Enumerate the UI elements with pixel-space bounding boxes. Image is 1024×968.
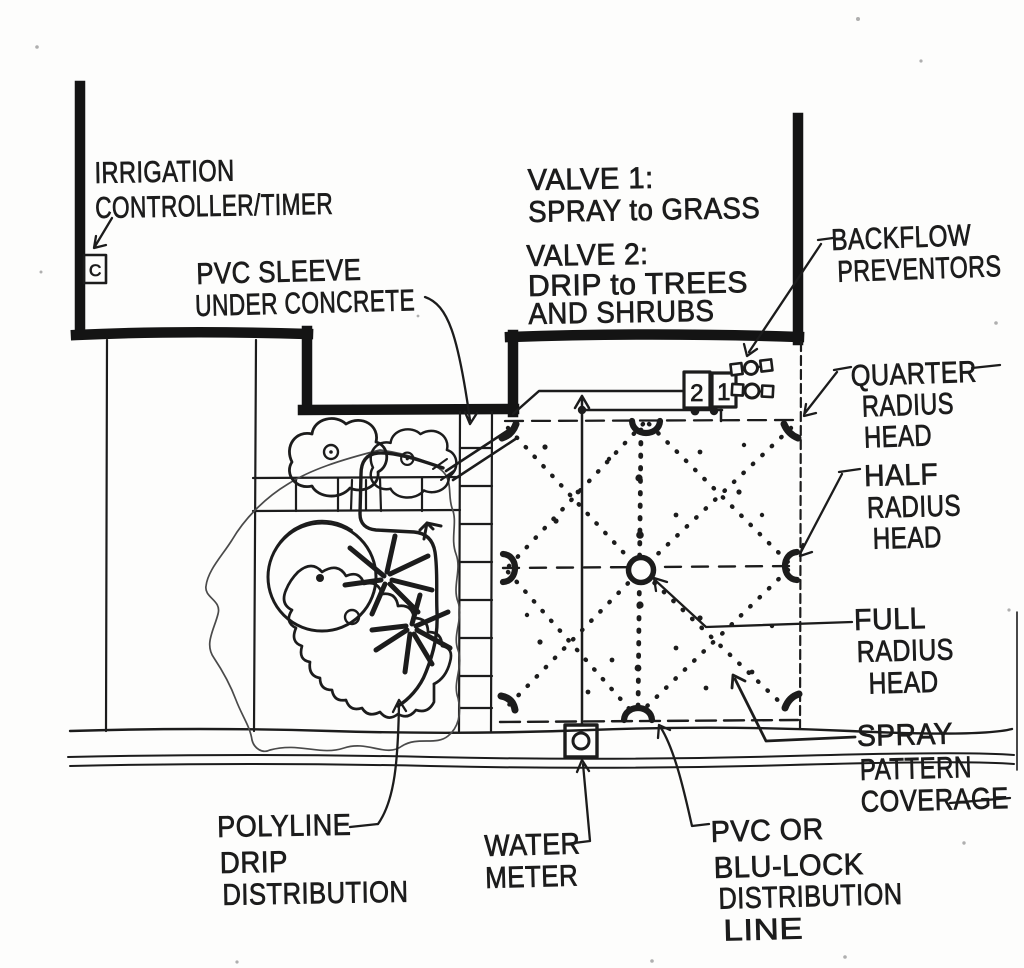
label-half-radius: HALF RADIUS HEAD xyxy=(864,458,962,556)
quarter-radius-head-bottom-right xyxy=(785,694,799,708)
sketch-canvas: 2 1 C xyxy=(0,0,1024,968)
backflow-preventer-1 xyxy=(730,359,772,377)
controller-symbol: C xyxy=(84,255,106,283)
house-outline xyxy=(76,86,799,412)
lawn-left-edge xyxy=(491,412,492,731)
label-irrigation-controller: IRRIGATION CONTROLLER/TIMER xyxy=(94,153,333,225)
drip-planting-zone xyxy=(206,419,460,752)
label-pvc-sleeve: PVC SLEEVE UNDER CONCRETE xyxy=(194,252,416,323)
cloud-shrub-2 xyxy=(371,429,457,497)
label-full-radius: FULL RADIUS HEAD xyxy=(854,601,956,701)
label-valve1: VALVE 1: SPRAY to GRASS xyxy=(527,160,760,229)
svg-text:SPRAY to GRASS: SPRAY to GRASS xyxy=(528,192,761,229)
backflow-preventer-2 xyxy=(732,383,774,399)
half-radius-head-top xyxy=(632,421,660,433)
svg-text:HEAD: HEAD xyxy=(863,419,932,454)
svg-text:CONTROLLER/TIMER: CONTROLLER/TIMER xyxy=(95,188,334,225)
half-radius-head-bottom xyxy=(624,708,652,720)
half-leader-arrow xyxy=(800,469,860,556)
controller-letter: C xyxy=(89,261,102,280)
svg-text:QUARTER: QUARTER xyxy=(850,356,977,393)
svg-text:VALVE 1:: VALVE 1: xyxy=(527,162,654,197)
svg-text:AND SHRUBS: AND SHRUBS xyxy=(528,295,715,331)
svg-text:COVERAGE: COVERAGE xyxy=(860,782,1009,819)
valve-1-number: 1 xyxy=(717,379,731,406)
half-radius-head-right xyxy=(785,552,797,580)
svg-text:DISTRIBUTION: DISTRIBUTION xyxy=(718,878,903,916)
svg-text:WATER: WATER xyxy=(484,828,581,864)
lawn-spray-zone xyxy=(500,420,799,722)
label-polyline-drip: POLYLINE DRIP DISTRIBUTION xyxy=(217,808,409,912)
pvc-leader-arrow xyxy=(658,725,709,826)
walkway-left-edge xyxy=(459,412,460,731)
svg-text:PREVENTORS: PREVENTORS xyxy=(837,250,1002,289)
svg-text:FULL: FULL xyxy=(854,602,927,637)
label-backflow: BACKFLOW PREVENTORS xyxy=(831,218,1002,289)
label-pvc-distribution: PVC OR BLU-LOCK DISTRIBUTION LINE xyxy=(710,811,903,948)
right-property-line xyxy=(800,342,801,731)
drip-flow-arrow xyxy=(420,523,441,539)
svg-text:LINE: LINE xyxy=(723,913,804,948)
svg-text:POLYLINE: POLYLINE xyxy=(217,809,352,844)
label-valve2: VALVE 2: DRIP to TREES AND SHRUBS xyxy=(526,236,749,331)
svg-text:RADIUS: RADIUS xyxy=(867,489,962,524)
svg-text:HEAD: HEAD xyxy=(872,521,942,556)
svg-text:HEAD: HEAD xyxy=(868,666,939,701)
full-radius-head-center xyxy=(629,558,654,583)
annotations: IRRIGATION CONTROLLER/TIMER PVC SLEEVE U… xyxy=(94,153,1009,948)
supply-pipes xyxy=(513,391,722,725)
svg-text:SPRAY: SPRAY xyxy=(857,718,954,754)
svg-text:DISTRIBUTION: DISTRIBUTION xyxy=(222,876,409,912)
svg-text:PATTERN: PATTERN xyxy=(859,751,972,787)
full-leader-arrow xyxy=(654,578,852,627)
left-property-line xyxy=(106,340,107,731)
svg-text:UNDER CONCRETE: UNDER CONCRETE xyxy=(195,284,416,323)
svg-text:IRRIGATION: IRRIGATION xyxy=(94,155,235,190)
label-quarter-radius: QUARTER RADIUS HEAD xyxy=(850,356,979,455)
quarter-leader-arrow xyxy=(804,367,851,416)
svg-text:RADIUS: RADIUS xyxy=(856,633,954,669)
label-water-meter: WATER METER xyxy=(484,828,582,895)
irrigation-plan-sketch: 2 1 C xyxy=(0,0,1024,968)
valve-boxes: 2 1 xyxy=(684,372,736,408)
quarter-radius-head-bottom-left xyxy=(501,696,515,710)
driveway-line xyxy=(254,340,256,731)
svg-text:DRIP: DRIP xyxy=(220,846,289,880)
svg-text:RADIUS: RADIUS xyxy=(861,387,954,423)
svg-text:PVC OR: PVC OR xyxy=(710,813,824,849)
svg-text:METER: METER xyxy=(485,860,579,895)
svg-text:HALF: HALF xyxy=(864,458,939,493)
polyline-leader-arrow xyxy=(350,700,406,827)
valve-2-number: 2 xyxy=(690,380,704,407)
